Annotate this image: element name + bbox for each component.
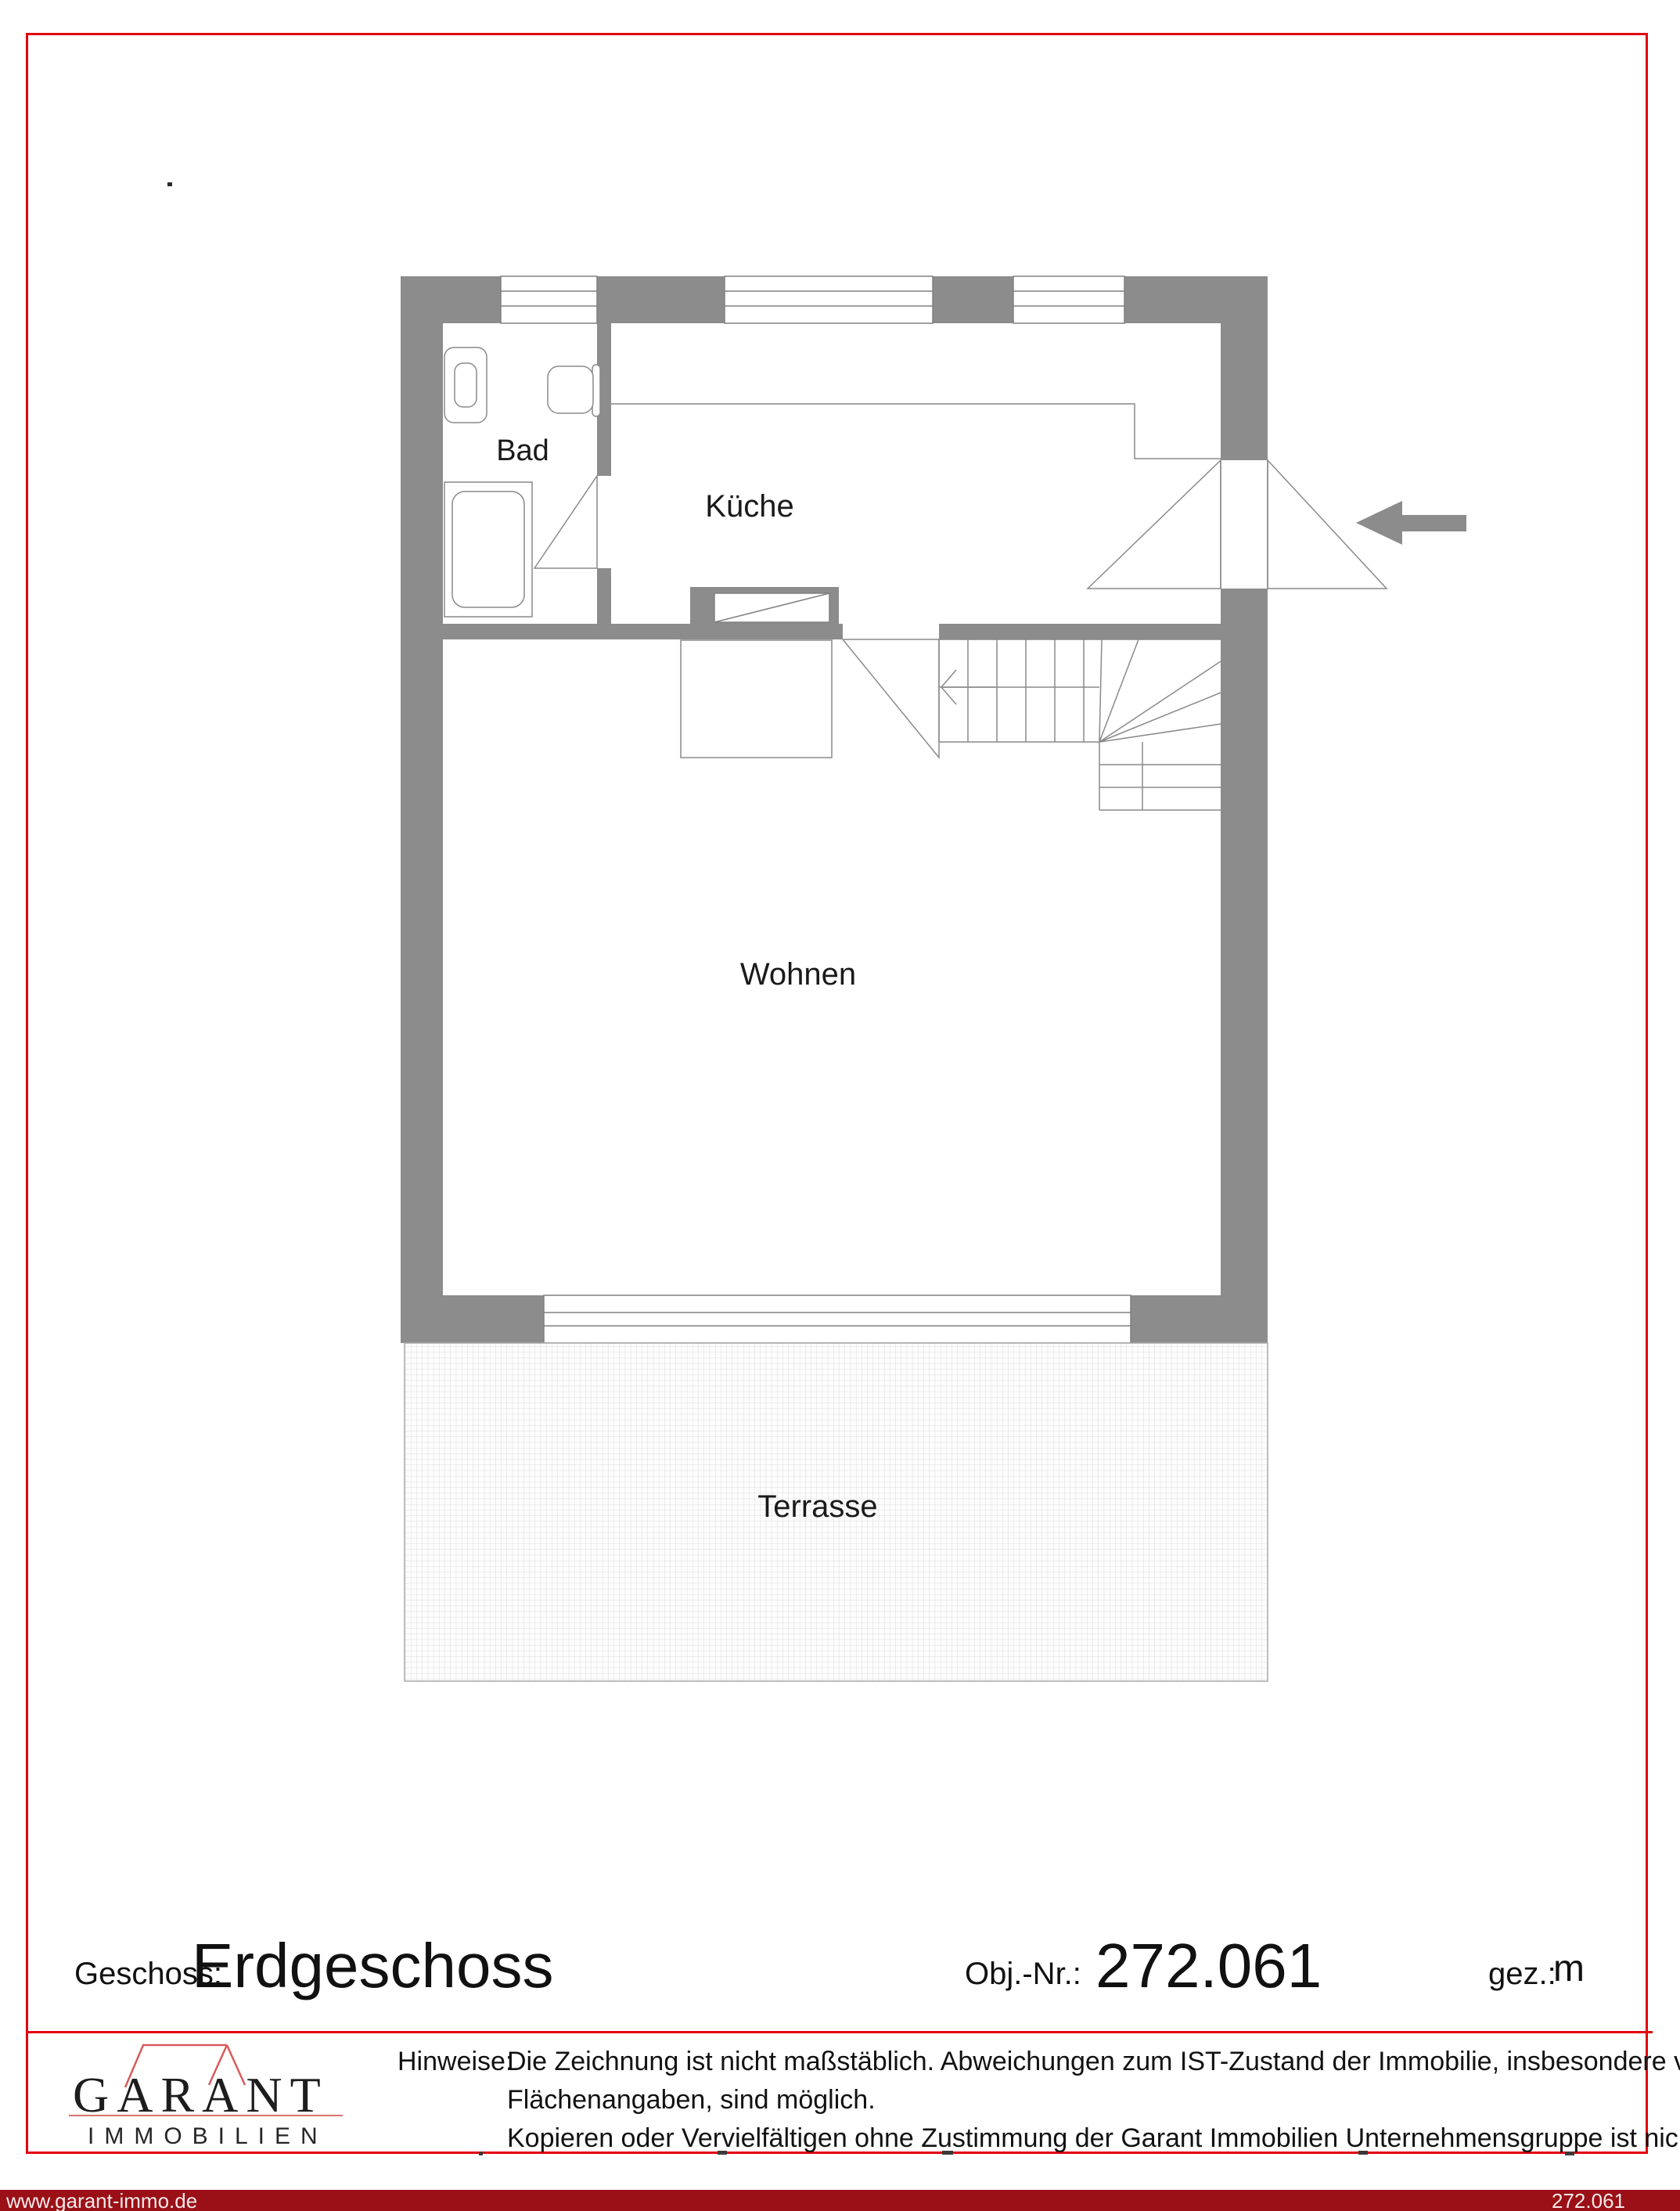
entrance-arrow-icon [1356,501,1466,545]
kitchen-counter [611,404,1221,459]
website-url: www.garant-immo.de [6,2189,197,2211]
cropped-text-fragment [1565,2152,1574,2155]
sink [548,365,600,416]
notes-line-1: Die Zeichnung ist nicht maßstäblich. Abw… [507,2047,1680,2076]
wall-above-stairs [939,624,1221,639]
entrance-door [1088,460,1387,589]
cropped-text-fragment [942,2151,953,2155]
wall-top-segment [933,276,1013,323]
drawn-by-label: gez.: [1488,1957,1556,1992]
floorplan-page: Bad Küche Wohnen Terrasse Geschoss: Erdg… [0,0,1680,2211]
object-number-value: 272.061 [1095,1930,1322,2002]
wall-bottom-right [1131,1295,1268,1343]
wall-right-upper [1221,323,1268,460]
sideboard [681,640,832,758]
room-label-terrace: Terrasse [757,1489,877,1524]
bar-object-number: 272.061 [1552,2189,1625,2211]
room-label-kitchen: Küche [705,489,793,524]
window-kitchen-right [1013,276,1124,323]
stairs-winder-lines [1099,639,1221,742]
room-label-bad: Bad [496,434,549,467]
notes-line-3: Kopieren oder Vervielfältigen ohne Zusti… [507,2119,1649,2158]
door-swing-entrance-inner [1088,460,1221,589]
floorplan-drawing: Bad Küche Wohnen Terrasse [0,0,1680,2211]
toilet [444,347,487,423]
wall-right-lower [1221,589,1268,1295]
entrance-opening [1221,460,1268,589]
object-number-label: Obj.-Nr.: [965,1957,1081,1992]
shower [444,482,532,617]
wall-bottom-left [401,1295,544,1343]
wall-top-segment [401,276,501,323]
windows [501,276,1131,1343]
wall-top-segment [1124,276,1268,323]
cropped-text-fragment [718,2151,727,2155]
notes-block: Hinweise:Die Zeichnung ist nicht maßstäb… [398,2043,1649,2158]
footer-separator-line [26,2031,1653,2033]
bottom-brand-bar [0,2190,1680,2211]
stairs [939,639,1221,810]
window-terrace-door [544,1295,1131,1343]
logo-rule [69,2115,343,2116]
drawn-by-value: m [1553,1947,1585,1990]
wall-bad-kitchen-divider-lower [597,568,611,624]
floor-value: Erdgeschoss [192,1930,553,2002]
door-swing-bathroom [534,476,597,568]
window-kitchen-left [725,276,933,323]
cropped-text-fragment [479,2152,483,2155]
window-bathroom [501,276,597,323]
wall-top-segment [597,276,725,323]
notes-line-2: Flächenangaben, sind möglich. [507,2081,1649,2119]
room-label-living: Wohnen [740,957,856,992]
notes-label: Hinweise: [398,2043,507,2081]
bathroom-fixtures [444,347,600,617]
door-swing-kitchen-living [843,639,939,758]
cropped-text-fragment [1358,2151,1368,2155]
wall-left [401,323,443,1295]
window-pass-through [714,593,829,622]
logo-subtitle: IMMOBILIEN [88,2123,328,2150]
